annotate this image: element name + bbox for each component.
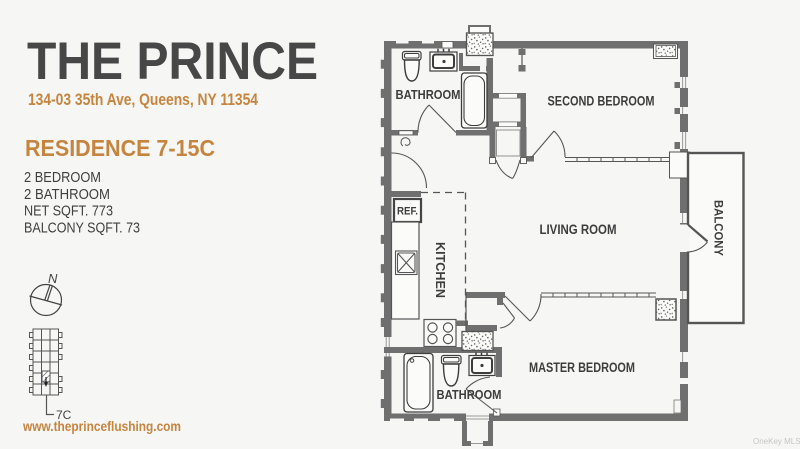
- svg-text:7C: 7C: [56, 408, 72, 422]
- svg-text:BATHROOM: BATHROOM: [396, 88, 461, 102]
- svg-text:www.theprinceflushing.com: www.theprinceflushing.com: [22, 419, 181, 434]
- svg-text:BATHROOM: BATHROOM: [437, 388, 502, 402]
- svg-text:N: N: [48, 271, 58, 286]
- svg-text:2 BEDROOM: 2 BEDROOM: [24, 170, 101, 186]
- svg-text:KITCHEN: KITCHEN: [433, 242, 447, 298]
- svg-text:134-03 35th Ave, Queens, NY 11: 134-03 35th Ave, Queens, NY 11354: [28, 91, 259, 109]
- svg-text:MASTER BEDROOM: MASTER BEDROOM: [529, 360, 635, 375]
- svg-text:NET SQFT. 773: NET SQFT. 773: [24, 204, 113, 220]
- svg-text:2 BATHROOM: 2 BATHROOM: [24, 187, 110, 203]
- svg-text:SECOND BEDROOM: SECOND BEDROOM: [548, 94, 655, 109]
- svg-text:REF.: REF.: [397, 206, 418, 218]
- svg-text:THE PRINCE: THE PRINCE: [27, 32, 318, 91]
- svg-text:OneKey MLS: OneKey MLS: [753, 437, 800, 446]
- svg-text:BALCONY SQFT. 73: BALCONY SQFT. 73: [24, 221, 140, 237]
- svg-text:RESIDENCE 7-15C: RESIDENCE 7-15C: [25, 135, 215, 161]
- svg-text:LIVING ROOM: LIVING ROOM: [540, 222, 617, 237]
- svg-text:BALCONY: BALCONY: [712, 200, 724, 256]
